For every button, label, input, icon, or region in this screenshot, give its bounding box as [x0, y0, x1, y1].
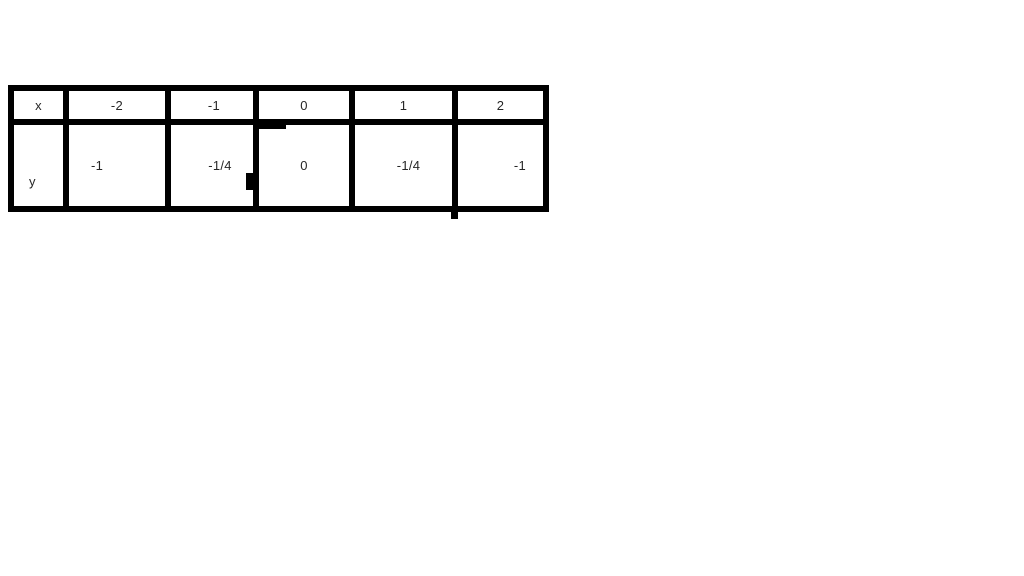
header-cell: 0: [259, 91, 349, 119]
header-cell: -2: [69, 91, 165, 119]
header-cell: 1: [355, 91, 452, 119]
value-cell: -1/4: [171, 125, 253, 206]
hand-drawn-line-notch: [246, 173, 254, 190]
header-cell: -1: [171, 91, 253, 119]
page-canvas: x -2 -1 0 1 2 y -1 -1/4 0 -1/4 -1: [0, 0, 1024, 576]
row-label-y: y: [14, 125, 63, 206]
value-cell: 0: [259, 125, 349, 206]
xy-values-table: x -2 -1 0 1 2 y -1 -1/4 0 -1/4 -1: [8, 85, 549, 212]
hand-drawn-line-overshoot: [451, 210, 458, 219]
row-label-x: x: [14, 91, 63, 119]
value-cell: -1: [458, 125, 543, 206]
value-cell: -1/4: [355, 125, 452, 206]
hand-drawn-line-step: [258, 122, 286, 129]
value-cell: -1: [69, 125, 165, 206]
header-cell: 2: [458, 91, 543, 119]
